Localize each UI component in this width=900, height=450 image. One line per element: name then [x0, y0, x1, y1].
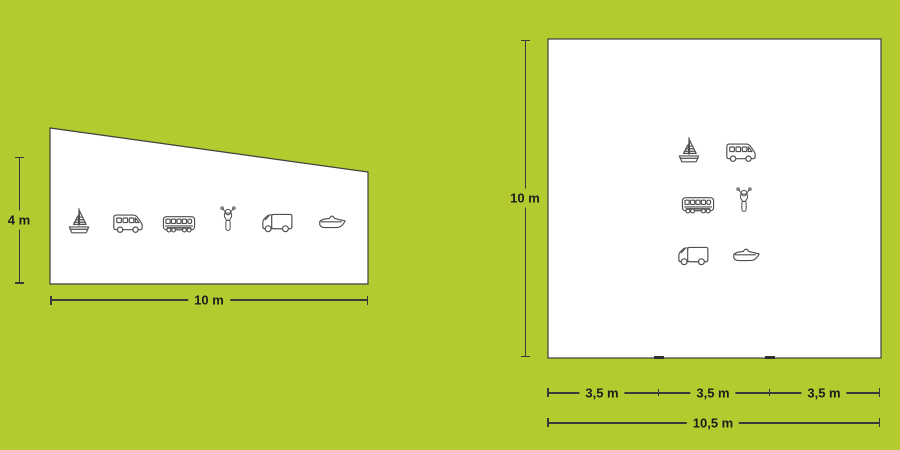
truck-icon [260, 209, 297, 236]
left-height-bottom-tick [15, 282, 24, 284]
right-height-label: 10 m [506, 189, 544, 208]
left-height-top-tick [15, 157, 24, 159]
truck-icon [676, 242, 713, 269]
segment-left-tick [547, 388, 549, 397]
trapezoid-lot-shape [50, 128, 368, 284]
segment-label-2: 3,5 m [690, 386, 735, 401]
segment-right-tick [879, 388, 881, 397]
left-base-right-tick [367, 296, 369, 305]
bus-icon [680, 192, 717, 216]
sailboat-icon [676, 136, 703, 165]
speedboat-icon [315, 211, 349, 233]
total-right-tick [879, 418, 881, 427]
right-height-bottom-tick [521, 356, 530, 358]
bus-icon [161, 211, 198, 235]
segment-label-3: 3,5 m [801, 386, 846, 401]
minibus-icon [111, 211, 146, 236]
total-width-label: 10,5 m [687, 416, 739, 431]
left-base-left-tick [50, 296, 52, 305]
diagram-canvas: 4 m 10 m 10 m 3,5 m 3,5 m 3,5 m 10,5 m [0, 0, 900, 450]
square-bottom-third-tick-1 [654, 356, 664, 359]
speedboat-icon [729, 244, 763, 266]
total-left-tick [547, 418, 549, 427]
minibus-icon [724, 140, 759, 165]
sailboat-icon [66, 207, 93, 236]
left-height-label: 4 m [6, 211, 32, 230]
segment-mid-tick-2 [769, 389, 771, 396]
scooter-icon [217, 205, 240, 235]
right-height-top-tick [521, 40, 530, 42]
segment-label-1: 3,5 m [579, 386, 624, 401]
left-base-label: 10 m [188, 293, 230, 308]
square-bottom-third-tick-2 [765, 356, 775, 359]
segment-mid-tick-1 [658, 389, 660, 396]
scooter-icon [733, 186, 756, 216]
